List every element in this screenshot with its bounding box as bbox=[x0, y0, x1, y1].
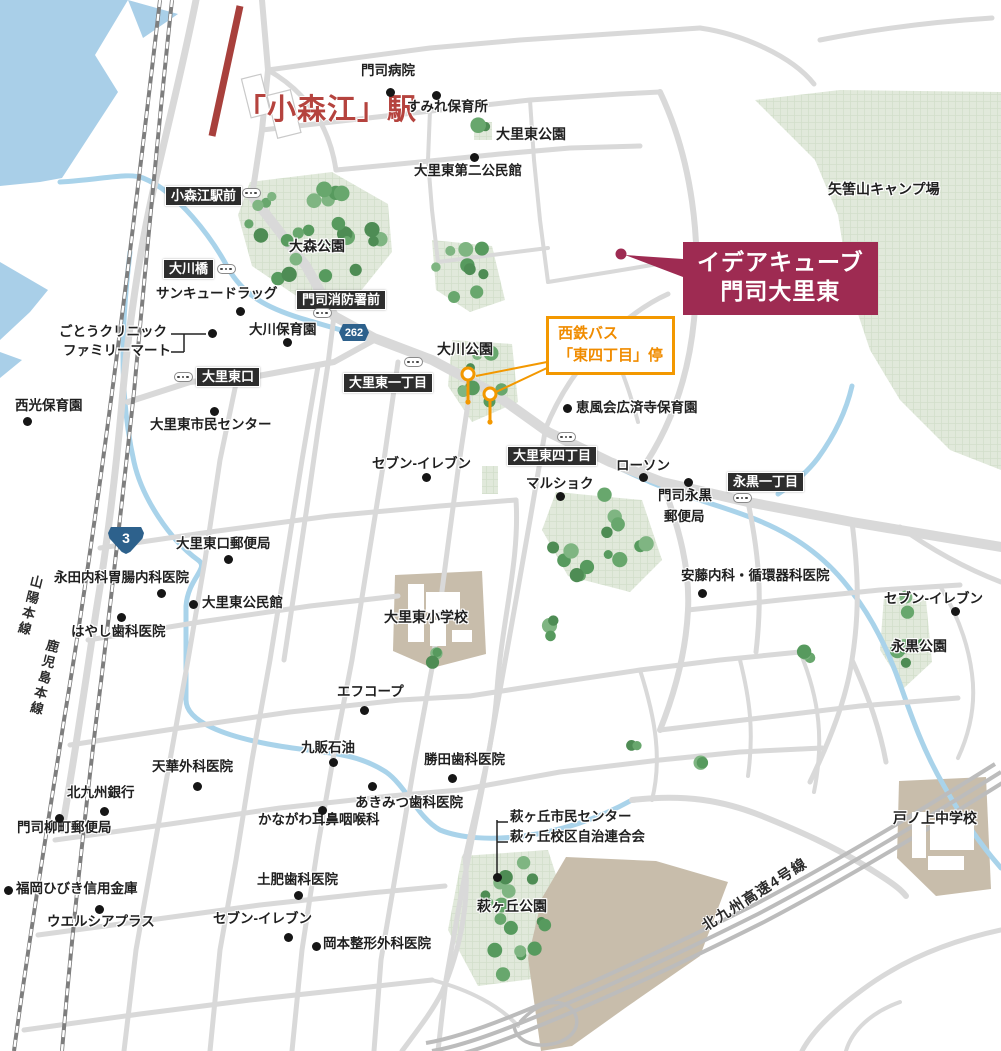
bus-stop-icon bbox=[313, 308, 332, 318]
callout-dot bbox=[208, 329, 217, 338]
tree-icon bbox=[458, 242, 473, 257]
tree-icon bbox=[504, 921, 518, 935]
tree-icon bbox=[364, 222, 379, 237]
tree-icon bbox=[545, 631, 556, 642]
bus-stop-icon bbox=[557, 432, 576, 442]
poi-label: 福岡ひびき信用金庫 bbox=[16, 882, 138, 897]
poi-label: あきみつ歯科医院 bbox=[355, 796, 463, 811]
area-label: 矢筈山キャンプ場 bbox=[828, 182, 940, 197]
poi-label: 萩ヶ丘市民センター bbox=[510, 810, 632, 825]
tree-icon bbox=[901, 606, 914, 619]
map-geometry bbox=[0, 0, 1001, 1051]
poi-label: すみれ保育所 bbox=[407, 100, 488, 115]
tree-icon bbox=[632, 741, 641, 750]
poi-label: 門司柳町郵便局 bbox=[17, 821, 112, 836]
tree-icon bbox=[548, 615, 558, 625]
poi-dot bbox=[318, 806, 327, 815]
tree-icon bbox=[368, 236, 379, 247]
area-label: 大里東小学校 bbox=[384, 610, 468, 625]
poi-label: 郵便局 bbox=[664, 510, 705, 525]
tree-icon bbox=[350, 264, 362, 276]
tree-icon bbox=[601, 527, 612, 538]
tree-icon bbox=[487, 943, 502, 958]
poi-dot bbox=[639, 473, 648, 482]
poi-label: 恵風会広済寺保育園 bbox=[576, 401, 698, 416]
poi-label: 大里東公民館 bbox=[202, 596, 283, 611]
poi-dot bbox=[368, 782, 377, 791]
poi-label: かながわ耳鼻咽喉科 bbox=[258, 813, 380, 828]
station-platform-bar bbox=[212, 6, 240, 136]
poi-label: 岡本整形外科医院 bbox=[323, 937, 431, 952]
tree-icon bbox=[290, 253, 303, 266]
property-location-dot bbox=[616, 249, 627, 260]
bus-stop-icon bbox=[242, 188, 261, 198]
poi-dot bbox=[470, 153, 479, 162]
property-name-line2: 門司大里東 bbox=[720, 278, 840, 304]
bus-stop-icon bbox=[217, 264, 236, 274]
bus-stop-icon bbox=[404, 357, 423, 367]
poi-dot bbox=[283, 338, 292, 347]
tree-icon bbox=[517, 856, 530, 869]
route-badge: 262 bbox=[339, 324, 369, 341]
tree-icon bbox=[527, 873, 538, 884]
road-sign-label: 大里東口 bbox=[196, 367, 260, 387]
tree-icon bbox=[570, 568, 584, 582]
area-label: 大川公園 bbox=[437, 342, 493, 357]
tree-icon bbox=[334, 186, 350, 202]
tree-icon bbox=[604, 550, 613, 559]
tree-icon bbox=[495, 913, 507, 925]
poi-dot bbox=[360, 706, 369, 715]
poi-label: ごとうクリニック bbox=[59, 325, 167, 340]
tree-icon bbox=[478, 269, 488, 279]
poi-dot bbox=[556, 492, 565, 501]
poi-label: 大里東口郵便局 bbox=[176, 537, 271, 552]
road-sign-label: 大里東一丁目 bbox=[343, 373, 433, 393]
poi-label: ローソン bbox=[616, 459, 670, 474]
tree-icon bbox=[470, 117, 486, 133]
poi-label: 天華外科医院 bbox=[152, 760, 233, 775]
tree-icon bbox=[445, 246, 455, 256]
poi-dot bbox=[329, 758, 338, 767]
tree-icon bbox=[244, 219, 253, 228]
bus-stop-name-label: 「東四丁目」停 bbox=[558, 347, 663, 364]
property-callout: イデアキューブ 門司大里東 bbox=[683, 242, 878, 315]
poi-label: 永田内科胃腸内科医院 bbox=[54, 571, 189, 586]
poi-dot bbox=[157, 589, 166, 598]
property-pointer bbox=[625, 255, 683, 277]
tree-icon bbox=[431, 262, 440, 271]
poi-label: エフコープ bbox=[337, 685, 404, 700]
poi-label: 土肥歯科医院 bbox=[257, 873, 338, 888]
tree-icon bbox=[563, 543, 578, 558]
road-sign-label: 小森江駅前 bbox=[165, 186, 242, 206]
poi-label: セブン-イレブン bbox=[213, 912, 312, 927]
tree-icon bbox=[426, 656, 439, 669]
property-name-line1: イデアキューブ bbox=[697, 249, 864, 275]
tree-icon bbox=[597, 488, 611, 502]
bus-stop-callout: 西鉄バス 「東四丁目」停 bbox=[546, 316, 675, 375]
poi-dot bbox=[684, 478, 693, 487]
area-label: 萩ヶ丘公園 bbox=[477, 899, 547, 914]
tree-icon bbox=[252, 200, 263, 211]
tree-icon bbox=[267, 192, 276, 201]
tree-icon bbox=[293, 227, 304, 238]
poi-label: 勝田歯科医院 bbox=[424, 753, 505, 768]
poi-dot bbox=[4, 886, 13, 895]
callout-dot bbox=[493, 873, 502, 882]
poi-dot bbox=[386, 88, 395, 97]
area-label: 永黒公園 bbox=[891, 639, 947, 654]
tree-icon bbox=[612, 552, 627, 567]
tree-icon bbox=[303, 225, 314, 236]
poi-dot bbox=[117, 613, 126, 622]
poi-label: セブン-イレブン bbox=[372, 457, 471, 472]
area-label: 大里東公園 bbox=[496, 127, 566, 142]
bus-stop-icon bbox=[174, 372, 193, 382]
poi-label: 大里東第二公民館 bbox=[414, 164, 522, 179]
tree-icon bbox=[475, 242, 489, 256]
area-label: 大森公園 bbox=[289, 239, 345, 254]
poi-dot bbox=[448, 774, 457, 783]
tree-icon bbox=[697, 757, 708, 768]
tree-icon bbox=[797, 645, 811, 659]
tree-icon bbox=[470, 285, 483, 298]
poi-dot bbox=[312, 942, 321, 951]
tree-icon bbox=[319, 269, 332, 282]
tree-icon bbox=[254, 228, 269, 243]
tree-icon bbox=[514, 945, 526, 957]
tree-icon bbox=[282, 267, 297, 282]
bus-company-label: 西鉄バス bbox=[558, 325, 618, 342]
poi-dot bbox=[236, 307, 245, 316]
poi-label: 大里東市民センター bbox=[150, 418, 272, 433]
poi-dot bbox=[224, 555, 233, 564]
poi-dot bbox=[189, 600, 198, 609]
poi-dot bbox=[193, 782, 202, 791]
poi-label: 門司病院 bbox=[361, 64, 415, 79]
tree-icon bbox=[332, 217, 346, 231]
poi-dot bbox=[95, 905, 104, 914]
tree-icon bbox=[433, 648, 442, 657]
poi-label: 安藤内科・循環器科医院 bbox=[681, 569, 830, 584]
poi-dot bbox=[55, 814, 64, 823]
tree-icon bbox=[307, 193, 322, 208]
poi-dot bbox=[432, 91, 441, 100]
poi-label: サンキュードラッグ bbox=[156, 287, 278, 302]
poi-label: はやし歯科医院 bbox=[71, 625, 166, 640]
tree-icon bbox=[496, 967, 510, 981]
poi-dot bbox=[210, 407, 219, 416]
poi-label: 大川保育園 bbox=[249, 323, 317, 338]
tree-icon bbox=[528, 942, 542, 956]
poi-label: 西光保育園 bbox=[15, 399, 83, 414]
area-label: 戸ノ上中学校 bbox=[893, 811, 977, 826]
poi-dot bbox=[284, 933, 293, 942]
poi-dot bbox=[951, 607, 960, 616]
tree-icon bbox=[611, 517, 625, 531]
road-sign-label: 大里東四丁目 bbox=[507, 446, 597, 466]
poi-label: ファミリーマート bbox=[63, 344, 171, 359]
tree-icon bbox=[539, 919, 552, 932]
road-sign-label: 門司消防署前 bbox=[296, 290, 386, 310]
poi-dot bbox=[422, 473, 431, 482]
poi-label: 門司永黒 bbox=[658, 489, 712, 504]
poi-label: セブン-イレブン bbox=[884, 592, 983, 607]
bus-stop-icon bbox=[733, 493, 752, 503]
poi-label: ウエルシアプラス bbox=[47, 915, 155, 930]
tree-icon bbox=[464, 263, 476, 275]
city-map: 「小森江」駅 イデアキューブ 門司大里東 西鉄バス 「東四丁目」停 北九州高速4… bbox=[0, 0, 1001, 1051]
poi-dot bbox=[100, 807, 109, 816]
poi-dot bbox=[23, 417, 32, 426]
road-sign-label: 永黒一丁目 bbox=[727, 472, 804, 492]
poi-label: 九販石油 bbox=[301, 741, 355, 756]
poi-label: 北九州銀行 bbox=[67, 786, 135, 801]
poi-dot bbox=[698, 589, 707, 598]
tree-icon bbox=[448, 291, 460, 303]
poi-dot bbox=[563, 404, 572, 413]
tree-icon bbox=[901, 658, 911, 668]
poi-dot bbox=[294, 891, 303, 900]
tree-icon bbox=[547, 542, 559, 554]
tree-icon bbox=[639, 536, 654, 551]
poi-label: マルショク bbox=[526, 477, 594, 492]
road-sign-label: 大川橋 bbox=[163, 259, 214, 279]
poi-label: 萩ヶ丘校区自治連合会 bbox=[510, 830, 645, 845]
